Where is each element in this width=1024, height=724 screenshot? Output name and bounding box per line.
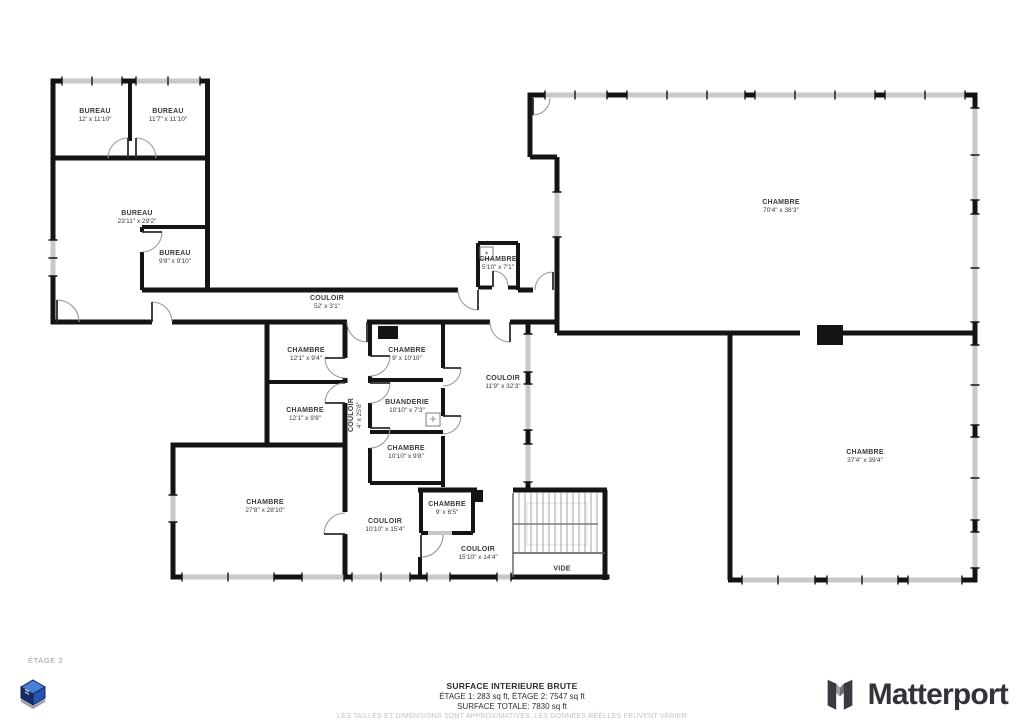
door-leaves	[57, 98, 553, 557]
floorplan-page: BUREAU12' x 11'10" BUREAU11'7" x 11'10" …	[0, 0, 1024, 724]
fixtures	[426, 247, 493, 426]
door-arcs	[57, 98, 553, 557]
chimney-blocks	[378, 325, 843, 502]
matterport-brand: Matterport	[821, 676, 1008, 714]
floorplan-drawing	[0, 0, 1024, 724]
brand-name: Matterport	[868, 678, 1008, 712]
matterport-logo-icon	[821, 676, 859, 714]
stairs	[513, 493, 605, 577]
floor-tag: ÉTAGE 2	[28, 656, 63, 665]
summary-disclaimer: LES TAILLES ET DIMENSIONS SONT APPROXIMA…	[0, 713, 1024, 720]
